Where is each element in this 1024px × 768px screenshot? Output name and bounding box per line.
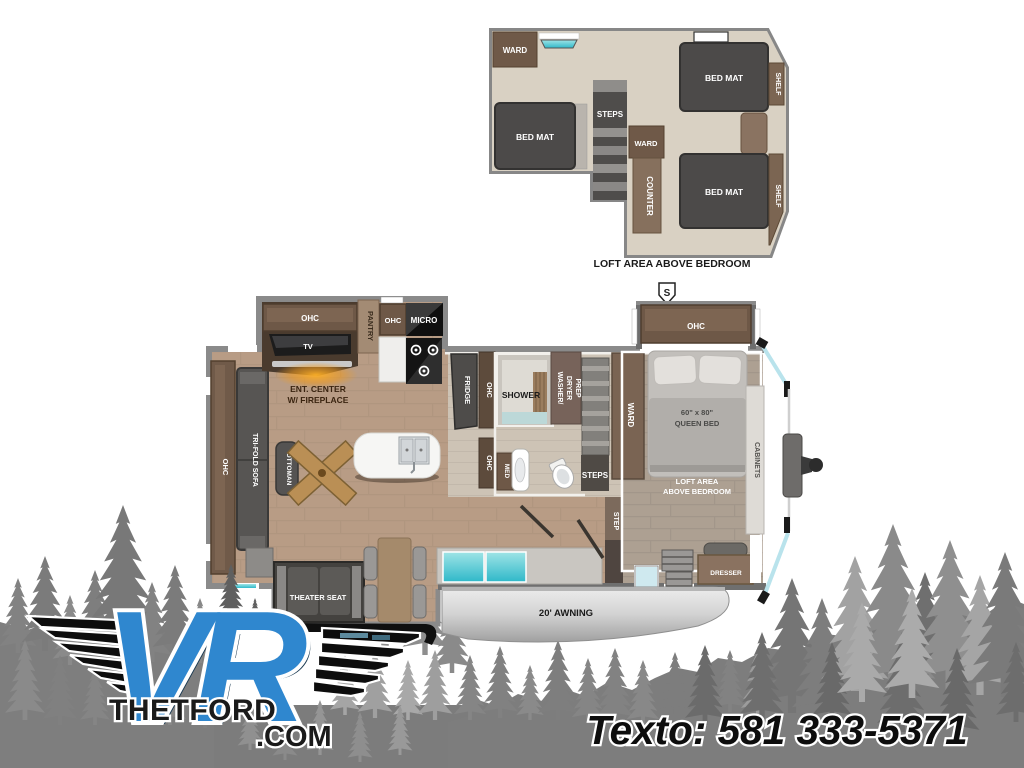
svg-text:COUNTER: COUNTER — [645, 176, 654, 216]
svg-text:TV: TV — [303, 342, 313, 351]
svg-text:BED MAT: BED MAT — [516, 132, 555, 142]
svg-text:PANTRY: PANTRY — [366, 311, 375, 341]
svg-text:20' AWNING: 20' AWNING — [539, 608, 593, 619]
svg-text:MICRO: MICRO — [411, 316, 438, 325]
svg-text:SHELF: SHELF — [774, 185, 781, 209]
svg-text:ABOVE BEDROOM: ABOVE BEDROOM — [663, 487, 731, 496]
svg-text:SHOWER: SHOWER — [502, 390, 540, 400]
svg-text:THEATER SEAT: THEATER SEAT — [290, 593, 347, 602]
svg-text:WASHER/: WASHER/ — [556, 372, 563, 405]
svg-text:QUEEN BED: QUEEN BED — [675, 419, 720, 428]
svg-text:BED MAT: BED MAT — [705, 187, 744, 197]
svg-text:OHC: OHC — [221, 459, 230, 476]
svg-text:MED: MED — [503, 464, 510, 479]
svg-text:BED MAT: BED MAT — [705, 73, 744, 83]
svg-text:DRYER: DRYER — [565, 376, 572, 400]
svg-text:Texto: 581 333-5371: Texto: 581 333-5371 — [586, 707, 967, 753]
svg-text:SHELF: SHELF — [774, 73, 781, 97]
svg-text:OTTOMAN: OTTOMAN — [285, 453, 292, 486]
svg-text:WARD: WARD — [635, 139, 658, 148]
svg-text:CABINETS: CABINETS — [753, 442, 760, 478]
svg-text:WARD: WARD — [503, 46, 528, 55]
svg-text:THETFORD: THETFORD — [109, 694, 276, 727]
svg-text:OHC: OHC — [687, 322, 705, 331]
svg-text:W/ FIREPLACE: W/ FIREPLACE — [288, 395, 349, 405]
svg-text:S: S — [664, 288, 671, 299]
svg-text:ENT. CENTER: ENT. CENTER — [290, 384, 346, 394]
svg-text:OHC: OHC — [485, 382, 492, 398]
svg-text:WARD: WARD — [626, 403, 635, 428]
svg-text:LOFT AREA ABOVE BEDROOM: LOFT AREA ABOVE BEDROOM — [594, 258, 751, 270]
svg-text:60" x 80": 60" x 80" — [681, 408, 714, 417]
svg-text:FRIDGE: FRIDGE — [463, 376, 472, 404]
svg-text:OHC: OHC — [385, 316, 402, 325]
svg-text:OHC: OHC — [485, 455, 492, 471]
svg-text:DRESSER: DRESSER — [710, 570, 742, 577]
svg-text:.COM: .COM — [256, 721, 332, 753]
svg-text:PREP: PREP — [574, 378, 581, 397]
svg-text:STEP: STEP — [612, 512, 619, 531]
svg-text:LOFT AREA: LOFT AREA — [676, 477, 719, 486]
svg-text:TRI-FOLD SOFA: TRI-FOLD SOFA — [251, 433, 258, 487]
svg-text:STEPS: STEPS — [582, 471, 609, 480]
svg-text:STEPS: STEPS — [597, 110, 624, 119]
svg-text:OHC: OHC — [301, 314, 319, 323]
